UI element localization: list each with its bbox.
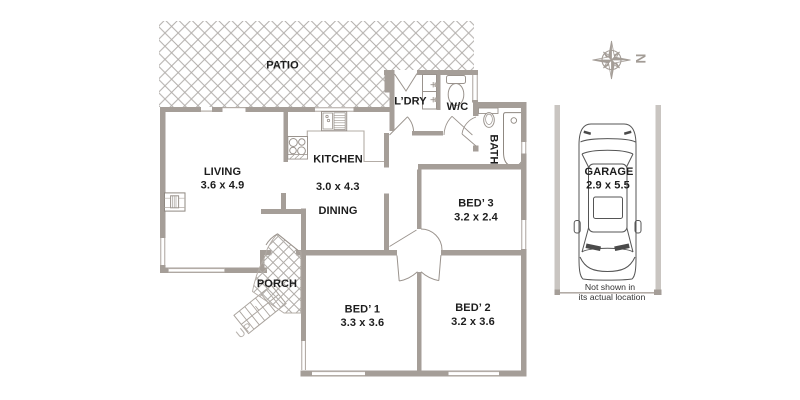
- svg-text:L’DRY: L’DRY: [394, 96, 427, 108]
- svg-text:W/C: W/C: [447, 101, 469, 113]
- svg-text:2.9 x 5.5: 2.9 x 5.5: [586, 179, 630, 191]
- svg-text:BED’ 1: BED’ 1: [345, 303, 380, 315]
- svg-text:BED’ 3: BED’ 3: [458, 198, 493, 210]
- svg-text:PORCH: PORCH: [257, 278, 297, 290]
- svg-text:Not shown in: Not shown in: [585, 282, 635, 292]
- svg-text:N: N: [633, 53, 649, 63]
- svg-text:DINING: DINING: [318, 205, 357, 217]
- svg-text:LIVING: LIVING: [204, 166, 241, 178]
- svg-text:3.6 x 4.9: 3.6 x 4.9: [201, 180, 245, 192]
- svg-text:3.2 x 3.6: 3.2 x 3.6: [451, 316, 495, 328]
- svg-text:PATIO: PATIO: [266, 60, 299, 72]
- svg-text:BED’ 2: BED’ 2: [455, 302, 490, 314]
- svg-text:3.0 x 4.3: 3.0 x 4.3: [316, 181, 360, 193]
- svg-text:3.2 x 2.4: 3.2 x 2.4: [454, 212, 498, 224]
- svg-text:BATH’: BATH’: [488, 134, 500, 167]
- svg-text:GARAGE: GARAGE: [585, 166, 634, 178]
- svg-text:KITCHEN: KITCHEN: [313, 154, 363, 166]
- svg-text:3.3 x 3.6: 3.3 x 3.6: [341, 317, 385, 329]
- svg-text:its actual location: its actual location: [579, 292, 646, 302]
